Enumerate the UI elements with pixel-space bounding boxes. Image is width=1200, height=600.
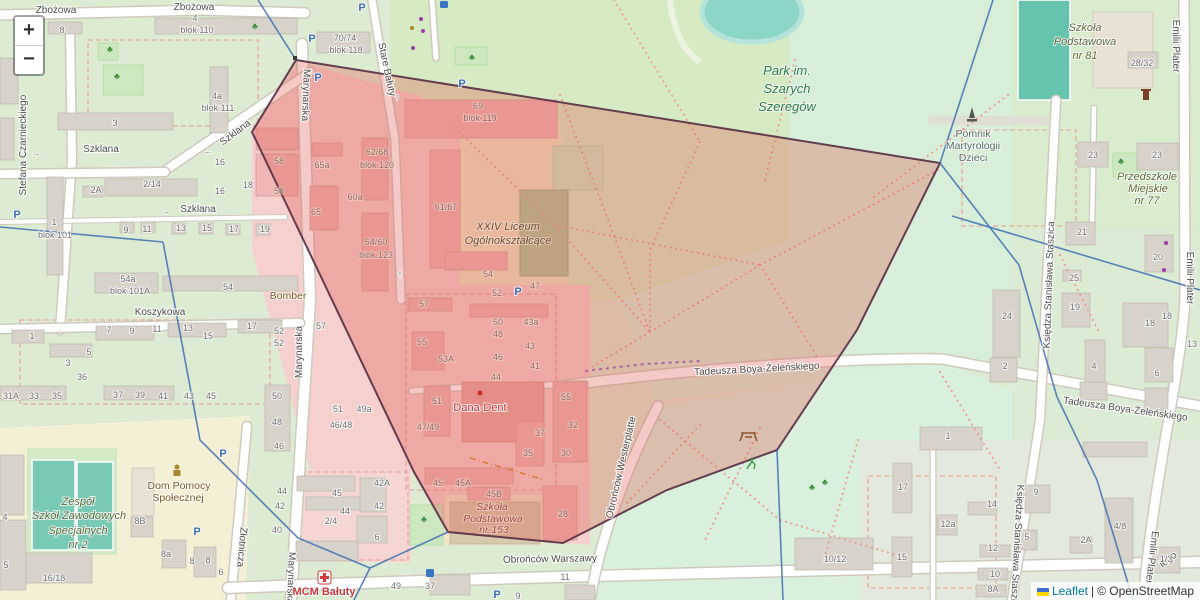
building-number: 51 (432, 396, 442, 406)
building-number: 30 (561, 448, 571, 458)
tree-icon: ♣ (421, 514, 427, 524)
bus-stop-icon (426, 569, 434, 577)
building-number: 9 (515, 591, 520, 600)
building-number: 9 (123, 225, 128, 235)
building-number: 43a (523, 317, 538, 327)
building-number: 45 (332, 488, 342, 498)
building-number: 18 (243, 180, 253, 190)
school-label: nr 2 (69, 539, 88, 551)
school-label: nr 81 (1072, 50, 1097, 62)
building-number: 54a (120, 274, 135, 284)
building-number: 2/4 (325, 516, 338, 526)
building-number: 33 (29, 391, 39, 401)
school-label: Miejskie (1128, 183, 1168, 195)
building-number: 31A (3, 391, 19, 401)
building-number: 17 (898, 482, 908, 492)
school-label: Ogólnokształcące (465, 235, 552, 247)
building-number: 51 (333, 404, 343, 414)
building-number: 4 (2, 512, 7, 522)
building-number: 47 (530, 281, 540, 291)
attribution-bar: Leaflet|© OpenStreetMap (1031, 582, 1200, 600)
building-number: 45 (433, 478, 443, 488)
clinic-label: MCM Bałuty (293, 586, 357, 598)
artwork-dot (421, 29, 425, 33)
building-number: 65 (311, 207, 321, 217)
building-number: 11 (142, 224, 151, 234)
tree-icon: ♣ (809, 482, 815, 492)
building-number: 8a (161, 549, 171, 559)
building-number: 42 (275, 501, 285, 511)
building-number: 35 (523, 448, 533, 458)
building-number: 57 (419, 299, 429, 309)
building-number: 45B (486, 489, 502, 499)
school-label: Przedszkole (1117, 171, 1177, 183)
street-label: Obrońców Warszawy (503, 553, 597, 566)
building-number: 8 (189, 556, 194, 566)
building-number: 43 (184, 391, 194, 401)
building-number: 58 (274, 186, 284, 196)
clinic-label: Dana-Dent (453, 402, 506, 414)
building-number: 12 (988, 543, 998, 553)
tree-icon: ♣ (822, 477, 828, 487)
building-number: 46/48 (330, 420, 353, 430)
school-label: Szkoła (476, 501, 508, 513)
artwork-dot (1164, 241, 1168, 245)
street-label: Stefana Czarnieckiego (18, 94, 29, 195)
tree-icon: ♣ (114, 71, 120, 81)
building-number: 3 (112, 118, 117, 128)
building-number: 45 (206, 391, 216, 401)
building-number: 37 (535, 428, 545, 438)
building-number: 41 (158, 391, 168, 401)
building-number: 70/74 (334, 33, 357, 43)
school-label: Zespół (60, 496, 95, 508)
building-number: 50 (272, 391, 282, 401)
building-number: 13 (1187, 339, 1197, 349)
building-number: 2A (1080, 535, 1091, 545)
building-number: blok 123 (359, 250, 393, 260)
street-label: Zbożowa (174, 2, 215, 13)
building-number: 15 (202, 223, 212, 233)
building-number: 44 (340, 506, 350, 516)
street-label: Koszykowa (135, 307, 186, 318)
building-number: 16/18 (43, 573, 66, 583)
parking-icon: P (514, 286, 521, 298)
building-number: 55 (417, 337, 427, 347)
building-number: 13 (183, 323, 193, 333)
tree-icon: ♣ (469, 52, 475, 62)
building-number: blok 119 (463, 113, 496, 123)
amenity-label: Bomber (270, 290, 307, 302)
building-number: 1 (29, 331, 34, 341)
building-number: 41 (530, 361, 540, 371)
building-number: 52 (492, 288, 502, 298)
parking-icon: P (358, 2, 365, 14)
oneway-arrow-icon: ↑ (398, 269, 403, 279)
sports-field (1018, 0, 1070, 100)
building-number: 39 (135, 390, 145, 400)
zoom-control: + − (13, 15, 45, 76)
osm-link[interactable]: © OpenStreetMap (1097, 584, 1194, 598)
building-number: 6 (218, 567, 223, 577)
parking-icon: P (219, 448, 226, 460)
oneway-arrow-icon: ↑ (395, 92, 400, 102)
school-label: nr 77 (1134, 195, 1160, 207)
school-label: XXIV Liceum (475, 221, 540, 233)
building-number: blok 111 (202, 103, 235, 113)
building-number: 6 (374, 532, 379, 542)
building-number: 28 (558, 509, 568, 519)
building-number: 58 (274, 156, 284, 166)
parking-icon: P (458, 78, 465, 90)
building-number: 21 (1077, 227, 1087, 237)
monument-label: Martyrologii (946, 140, 1000, 152)
building-number: 46 (493, 352, 503, 362)
pond (702, 0, 802, 42)
building-number: 18 (1162, 311, 1172, 321)
building-number: 48 (493, 329, 503, 339)
pedestrian-path (928, 120, 1048, 121)
school-label: Szkoła (1068, 22, 1101, 34)
artwork-dot (1162, 268, 1166, 272)
building-number: 10/12 (824, 554, 847, 564)
building-number: 2 (1002, 361, 1007, 371)
building-number: 52 (274, 338, 284, 348)
map-canvas[interactable]: ZbożowaZbożowaStefana CzarnieckiegoSzkla… (0, 0, 1200, 600)
building-number: 2A (90, 185, 101, 195)
building-number: 9 (129, 326, 134, 336)
building-number: 42 (374, 501, 384, 511)
leaflet-link[interactable]: Leaflet (1052, 584, 1088, 598)
building-number: 23 (1152, 150, 1162, 160)
building-number: 4/8 (1114, 521, 1127, 531)
street-label: Emilii Plater (1184, 252, 1195, 305)
building-number: 42A (374, 478, 390, 488)
park-label: Szarych (764, 81, 811, 96)
building-number: 45A (455, 478, 471, 488)
building-number: 44 (491, 372, 501, 382)
building-number: 65a (314, 160, 329, 170)
building-number: 28/32 (1131, 58, 1154, 68)
school-label: Szkół Zawodowych (32, 510, 126, 522)
building-number: 8 (205, 555, 210, 565)
building-number: 61/67 (435, 202, 458, 212)
building-number: 35 (52, 391, 62, 401)
street-label: Marynarska (299, 69, 312, 122)
amenity-label: Dom Pomocy (147, 480, 211, 492)
parking-icon: P (493, 589, 500, 600)
ukraine-flag-icon (1037, 588, 1049, 596)
gate-icon (293, 56, 297, 60)
building-number: 37 (113, 390, 123, 400)
building-number: 10 (990, 569, 1000, 579)
amenity-label: Społecznej (152, 492, 203, 504)
building-number: 40 (272, 525, 282, 535)
building-number: 14 (987, 499, 997, 509)
building-number: 3 (65, 358, 70, 368)
map-tiles: ZbożowaZbożowaStefana CzarnieckiegoSzkla… (0, 0, 1200, 600)
building-number: 6 (1154, 368, 1159, 378)
building-number: 25 (1069, 273, 1079, 283)
building-number: 52 (274, 326, 284, 336)
building-number: 13 (176, 223, 186, 233)
parking-icon: P (193, 526, 200, 538)
building-number: 19 (260, 224, 270, 234)
building-number: 8A (987, 584, 998, 594)
building-number: blok 101 (38, 230, 72, 240)
building-number: 9 (1033, 487, 1038, 497)
building-number: 8B (134, 516, 145, 526)
building-number: 15 (203, 331, 213, 341)
building-number: 1 (51, 217, 56, 227)
street-label: Szklana (83, 144, 119, 155)
building-number: 50 (493, 317, 503, 327)
oneway-arrow-icon: → (162, 206, 171, 216)
school-label: nr 153 (479, 524, 509, 536)
building-number: 12a (940, 519, 955, 529)
building-number: 5 (86, 347, 91, 357)
park-label: Park im. (763, 63, 811, 78)
building-number: 1 (945, 431, 950, 441)
building-number: 46 (274, 441, 284, 451)
parking-meter-icon (440, 1, 448, 8)
street-label: Emilii Plater (1170, 20, 1181, 73)
building-number: 5 (3, 560, 8, 570)
building-number: 20 (1153, 252, 1163, 262)
building-number: 8 (59, 25, 64, 35)
parking-icon: P (314, 72, 321, 84)
building-number: 55 (561, 392, 571, 402)
artwork-dot (411, 46, 415, 50)
building-number: 44 (277, 486, 287, 496)
building-number: 4 (1091, 361, 1096, 371)
oneway-arrow-icon: → (32, 148, 41, 158)
building-number: 11 (152, 324, 161, 334)
building-number: blok 118 (329, 45, 362, 55)
building-number: 49 (391, 581, 401, 591)
street-label: Marynarska (294, 325, 305, 378)
artwork-dot (419, 17, 423, 21)
building-number: 18 (1145, 318, 1155, 328)
building-number: 43 (525, 341, 535, 351)
building-number: 4a (212, 91, 222, 101)
building-number: 11 (560, 572, 569, 582)
clinic-cross-icon (318, 571, 331, 584)
attribution-separator: | (1091, 584, 1094, 598)
building-number: blok 110 (180, 25, 213, 35)
zoom-in-button[interactable]: + (15, 17, 43, 46)
poi-dot (410, 26, 414, 30)
parking-icon: P (308, 33, 315, 45)
building-number: 36 (77, 372, 87, 382)
building-number: 17 (229, 224, 239, 234)
building-number: 7 (106, 325, 111, 335)
building-number: 48 (272, 417, 282, 427)
building-number: 23 (1088, 150, 1098, 160)
building-number: 60a (347, 192, 362, 202)
building-number: 5 (1024, 532, 1029, 542)
dentist-marker-dot (478, 391, 483, 396)
building-number: 24 (1002, 311, 1012, 321)
building-number: 57 (316, 321, 326, 331)
building-number: 17 (247, 321, 257, 331)
parking-icon: P (13, 209, 20, 221)
building-number: 4 (192, 13, 197, 23)
building-number: 1/3 (1160, 554, 1173, 564)
building-number: 54 (483, 269, 493, 279)
building-number: 69 (473, 101, 483, 111)
building-number: 54 (223, 282, 233, 292)
building-number: blok 101A (110, 286, 150, 296)
building-number: 47/49 (417, 422, 440, 432)
monument-label: Dzieci (959, 152, 988, 164)
street-label: Szklana (180, 204, 216, 215)
building-number: 2/14 (143, 179, 161, 189)
school-label: Podstawowa (1054, 36, 1116, 48)
building-number: 53A (438, 354, 454, 364)
park-label: Szeregów (758, 99, 817, 114)
building-number: 15 (897, 552, 907, 562)
building-number: blok 120 (360, 160, 394, 170)
building-number: 16 (215, 157, 225, 167)
building-number: 62/68 (366, 147, 389, 157)
monument-label: Pomnik (955, 128, 991, 140)
zoom-out-button[interactable]: − (15, 46, 43, 74)
building-number: 37 (425, 581, 435, 591)
oneway-arrow-icon: ← (204, 146, 213, 156)
building-number: 16 (215, 186, 225, 196)
building-number: 32 (568, 420, 578, 430)
building-number: 54/60 (365, 237, 388, 247)
tree-icon: ♣ (252, 21, 258, 31)
tree-icon: ♣ (1118, 156, 1124, 166)
school-label: Specjalnych (48, 525, 107, 537)
building-number: 49a (356, 404, 371, 414)
building-number: 19 (1070, 302, 1080, 312)
tree-icon: ♣ (107, 44, 113, 54)
